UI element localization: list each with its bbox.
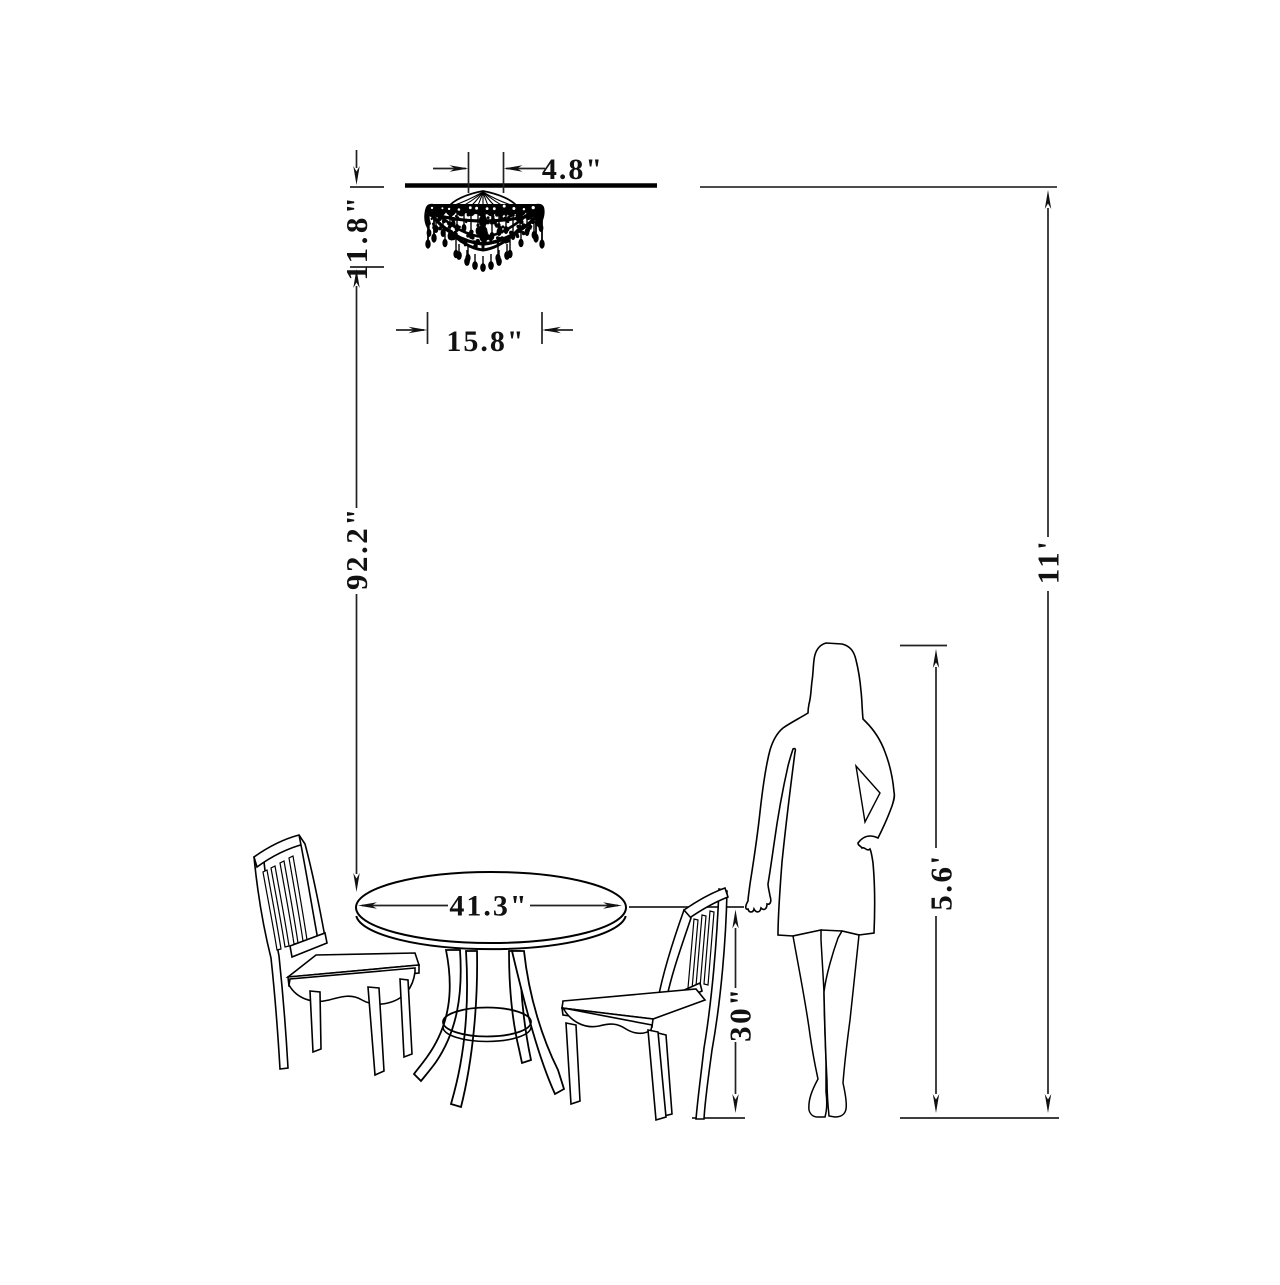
svg-text:11': 11'	[1031, 539, 1066, 584]
svg-text:5.6': 5.6'	[924, 853, 959, 910]
svg-text:41.3": 41.3"	[449, 890, 528, 923]
svg-text:11.8": 11.8"	[339, 193, 374, 280]
svg-text:4.8": 4.8"	[542, 153, 604, 186]
svg-text:30": 30"	[723, 986, 758, 1042]
svg-text:92.2": 92.2"	[339, 506, 374, 590]
svg-text:15.8": 15.8"	[446, 325, 525, 358]
